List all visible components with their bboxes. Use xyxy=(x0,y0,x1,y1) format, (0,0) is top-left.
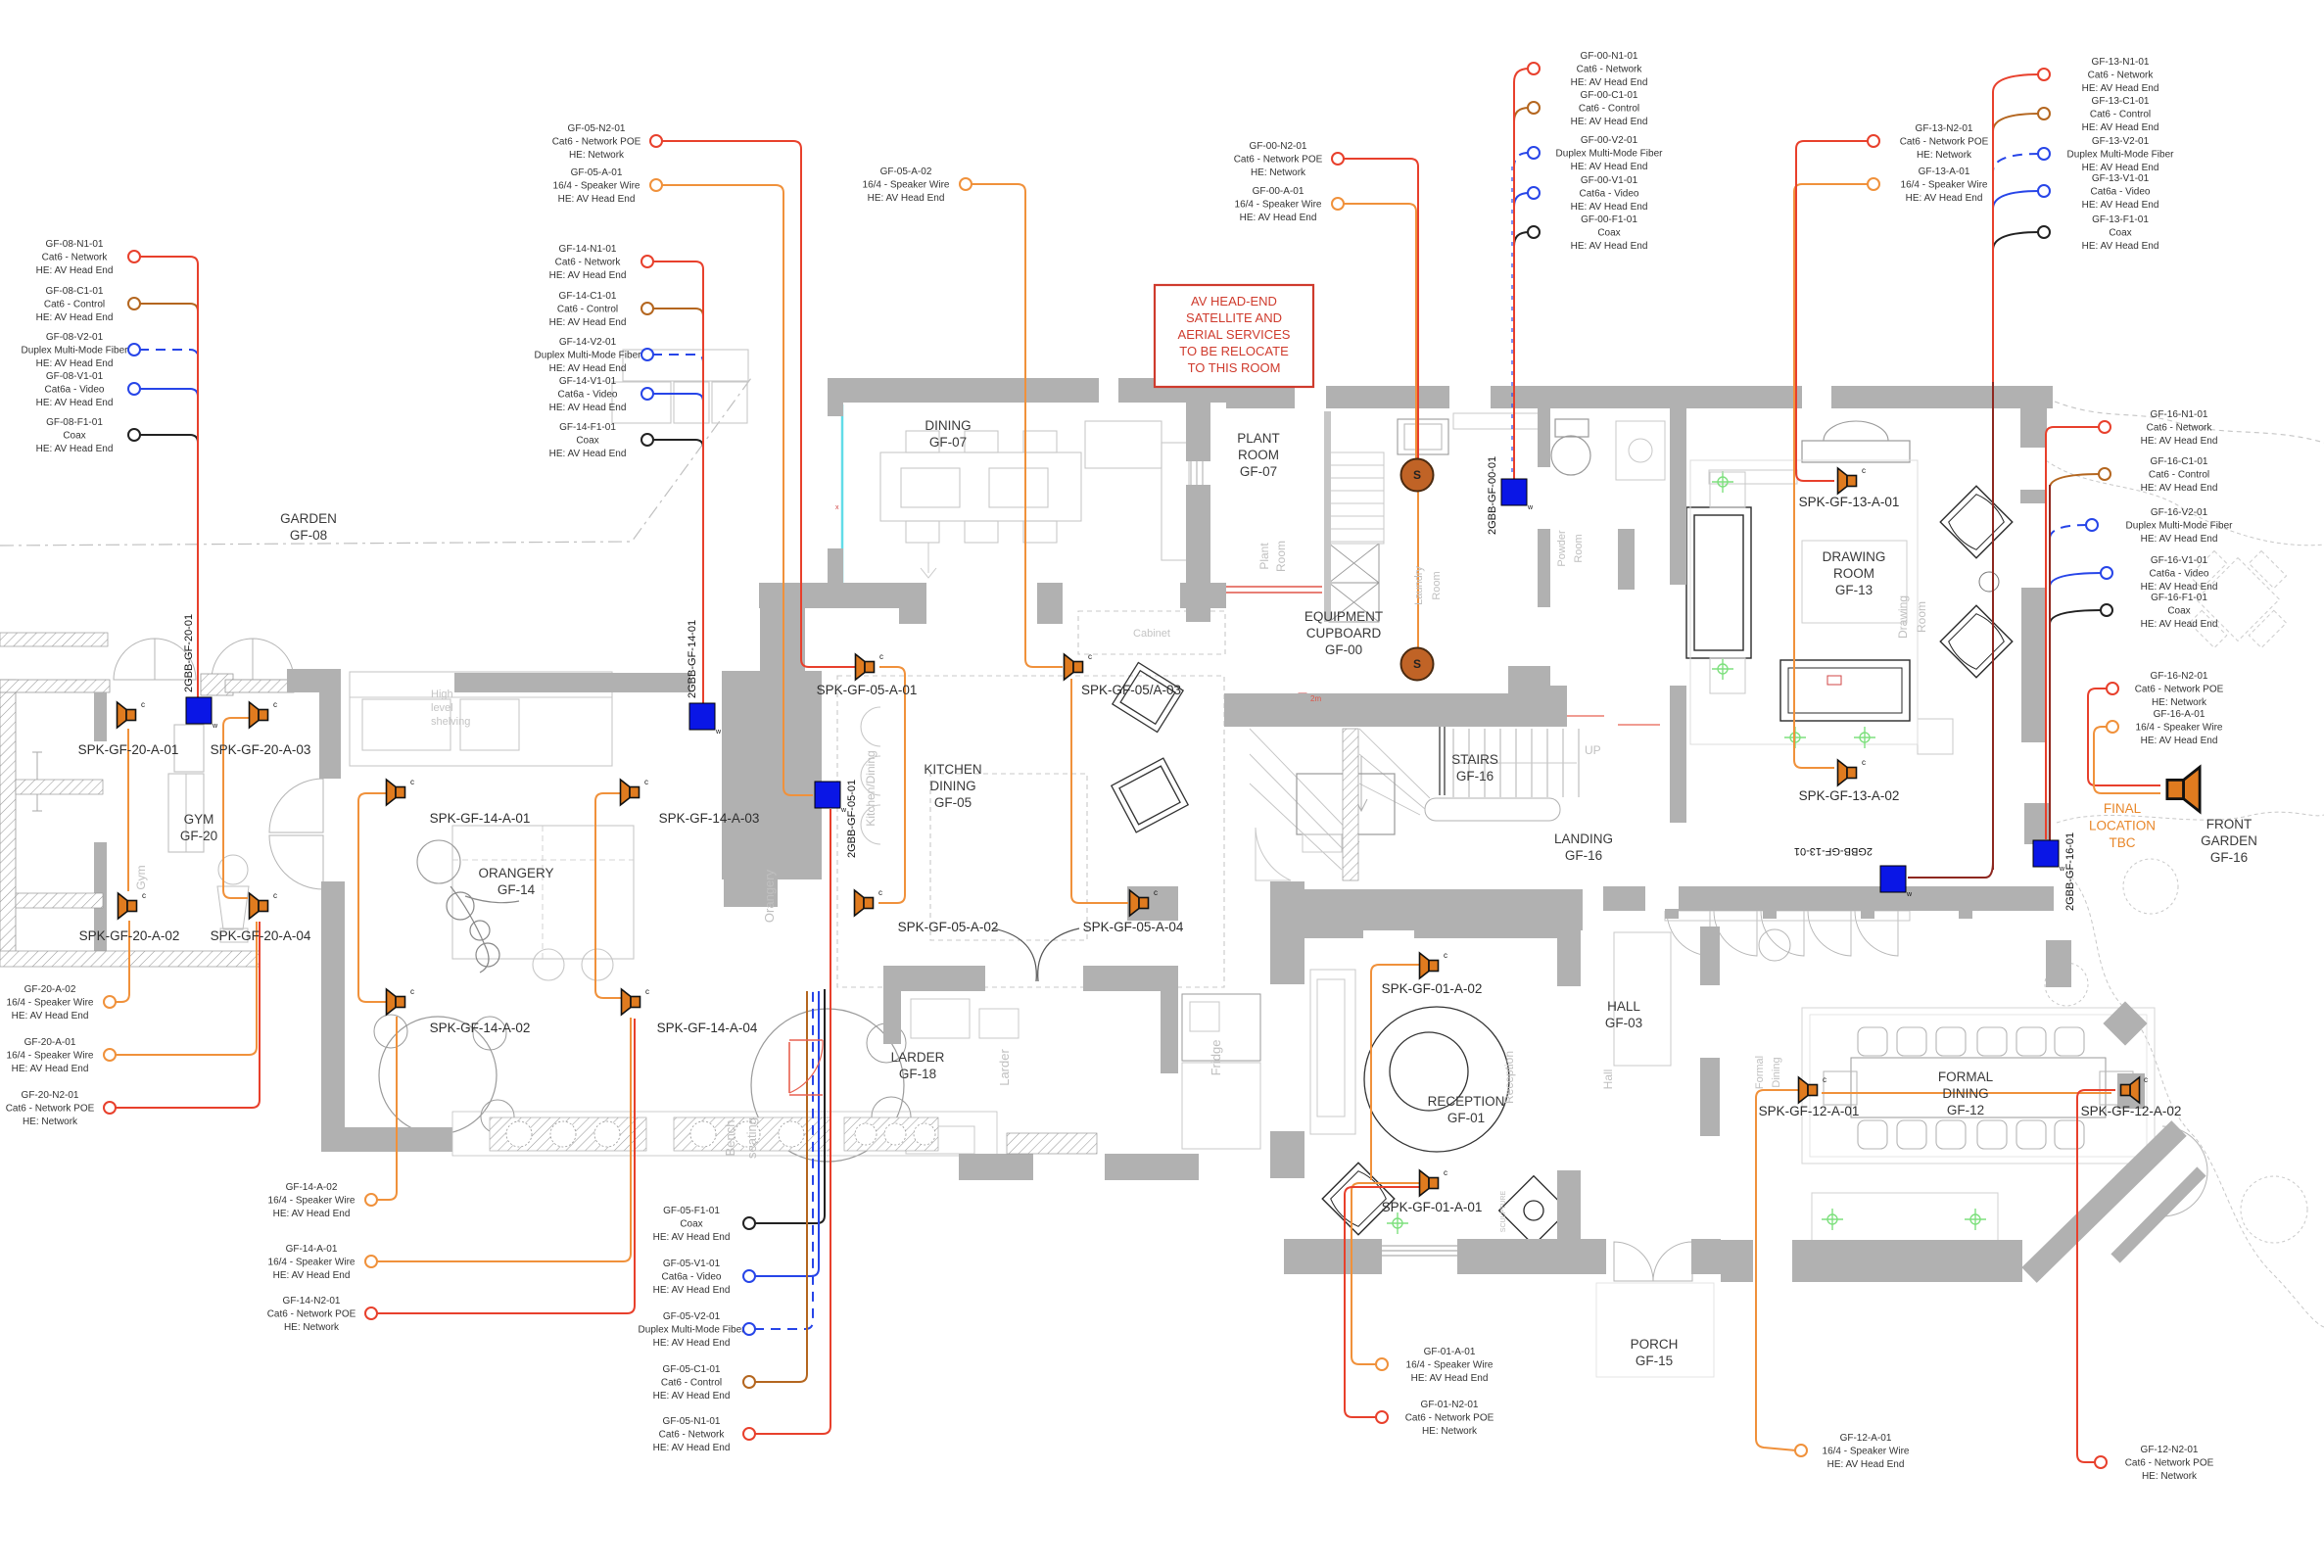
svg-text:Kitchen/Dining: Kitchen/Dining xyxy=(864,750,877,826)
svg-text:GF-14-N1-01Cat6 - NetworkHE: A: GF-14-N1-01Cat6 - NetworkHE: AV Head End xyxy=(549,244,627,281)
svg-text:GF-01: GF-01 xyxy=(1447,1111,1485,1125)
svg-text:RECEPTION: RECEPTION xyxy=(1428,1094,1505,1109)
svg-text:EQUIPMENT: EQUIPMENT xyxy=(1304,609,1383,624)
svg-text:PLANT: PLANT xyxy=(1237,431,1280,446)
svg-text:c: c xyxy=(1088,652,1092,661)
svg-text:UP: UP xyxy=(1585,743,1601,757)
svg-text:Hall: Hall xyxy=(1601,1069,1615,1090)
svg-text:Laundry: Laundry xyxy=(1413,566,1425,605)
svg-text:GF-03: GF-03 xyxy=(1605,1016,1642,1030)
svg-text:Reception: Reception xyxy=(1502,1051,1516,1104)
svg-text:SPK-GF-05-A-04: SPK-GF-05-A-04 xyxy=(1083,920,1184,934)
svg-text:w: w xyxy=(715,729,722,736)
svg-text:DINING: DINING xyxy=(1942,1086,1988,1101)
svg-text:SPK-GF-12-A-02: SPK-GF-12-A-02 xyxy=(2081,1104,2182,1118)
svg-text:w: w xyxy=(1527,504,1534,511)
svg-text:FINAL: FINAL xyxy=(2104,801,2142,816)
svg-text:2GBB-GF-14-01: 2GBB-GF-14-01 xyxy=(687,620,698,698)
svg-text:SPK-GF-20-A-04: SPK-GF-20-A-04 xyxy=(211,928,311,943)
svg-text:c: c xyxy=(1823,1075,1826,1084)
svg-text:GF-13-N1-01Cat6 - NetworkHE: A: GF-13-N1-01Cat6 - NetworkHE: AV Head End xyxy=(2082,57,2159,94)
svg-text:LANDING: LANDING xyxy=(1554,832,1613,846)
svg-text:c: c xyxy=(1444,1168,1447,1177)
svg-text:GF-16: GF-16 xyxy=(1456,769,1494,784)
svg-text:High: High xyxy=(431,689,453,700)
svg-text:SPK-GF-05-A-02: SPK-GF-05-A-02 xyxy=(898,920,999,934)
svg-text:GF-05-N1-01Cat6 - NetworkHE: A: GF-05-N1-01Cat6 - NetworkHE: AV Head End xyxy=(653,1416,731,1453)
svg-text:GF-14-V1-01Cat6a - VideoHE: AV: GF-14-V1-01Cat6a - VideoHE: AV Head End xyxy=(549,376,627,413)
svg-text:AV HEAD-END: AV HEAD-END xyxy=(1191,294,1277,309)
svg-text:AERIAL SERVICES: AERIAL SERVICES xyxy=(1178,327,1291,342)
svg-text:GF-00: GF-00 xyxy=(1325,642,1362,657)
svg-text:GF-20: GF-20 xyxy=(180,829,217,843)
svg-text:c: c xyxy=(1154,888,1158,897)
svg-text:GF-08: GF-08 xyxy=(290,528,327,543)
svg-text:2GBB-GF-00-01: 2GBB-GF-00-01 xyxy=(1487,456,1498,535)
svg-text:ROOM: ROOM xyxy=(1238,448,1279,462)
svg-text:GF-16: GF-16 xyxy=(2210,850,2248,865)
svg-text:SPK-GF-05/A-03: SPK-GF-05/A-03 xyxy=(1081,683,1181,697)
svg-text:Room: Room xyxy=(1431,571,1443,599)
svg-text:c: c xyxy=(273,700,277,709)
svg-text:x: x xyxy=(835,504,839,511)
svg-text:CUPBOARD: CUPBOARD xyxy=(1306,626,1382,641)
svg-text:2GBB-GF-13-01: 2GBB-GF-13-01 xyxy=(1794,845,1873,857)
svg-text:GF-16-V1-01Cat6a - VideoHE: AV: GF-16-V1-01Cat6a - VideoHE: AV Head End xyxy=(2141,555,2218,593)
svg-text:FORMAL: FORMAL xyxy=(1938,1069,1994,1084)
svg-text:level: level xyxy=(431,702,453,714)
svg-text:DINING: DINING xyxy=(925,418,971,433)
svg-text:Fridge: Fridge xyxy=(1209,1040,1223,1076)
svg-text:c: c xyxy=(2144,1075,2148,1084)
svg-text:GARDEN: GARDEN xyxy=(280,511,337,526)
svg-text:2GBB-GF-05-01: 2GBB-GF-05-01 xyxy=(846,780,858,858)
svg-text:GF-07: GF-07 xyxy=(1240,464,1277,479)
svg-text:GARDEN: GARDEN xyxy=(2201,833,2257,848)
svg-text:c: c xyxy=(1862,466,1866,475)
svg-text:GF-14-C1-01Cat6 - ControlHE: A: GF-14-C1-01Cat6 - ControlHE: AV Head End xyxy=(549,291,627,328)
svg-text:GYM: GYM xyxy=(184,812,214,827)
svg-text:Drawing: Drawing xyxy=(1896,595,1910,639)
svg-text:w: w xyxy=(1906,891,1913,898)
svg-text:Room: Room xyxy=(1274,541,1288,572)
svg-text:GF-08-N1-01Cat6 - NetworkHE: A: GF-08-N1-01Cat6 - NetworkHE: AV Head End xyxy=(36,239,114,276)
svg-text:Gym: Gym xyxy=(134,865,148,889)
svg-text:S: S xyxy=(1413,468,1421,482)
svg-text:SPK-GF-12-A-01: SPK-GF-12-A-01 xyxy=(1759,1104,1860,1118)
svg-text:c: c xyxy=(410,778,414,786)
svg-text:TBC: TBC xyxy=(2110,835,2136,850)
svg-text:Plant: Plant xyxy=(1257,543,1271,570)
svg-text:GF-08-V1-01Cat6a - VideoHE: AV: GF-08-V1-01Cat6a - VideoHE: AV Head End xyxy=(36,371,114,408)
svg-text:GF-13-V1-01Cat6a - VideoHE: AV: GF-13-V1-01Cat6a - VideoHE: AV Head End xyxy=(2082,173,2159,211)
svg-text:GF-07: GF-07 xyxy=(929,435,967,450)
svg-text:SPK-GF-13-A-02: SPK-GF-13-A-02 xyxy=(1799,788,1900,803)
svg-text:c: c xyxy=(644,778,648,786)
svg-text:SPK-GF-14-A-02: SPK-GF-14-A-02 xyxy=(430,1021,531,1035)
svg-text:Cabinet: Cabinet xyxy=(1133,628,1170,640)
svg-text:2m: 2m xyxy=(1310,694,1321,703)
svg-text:2GBB-GF-16-01: 2GBB-GF-16-01 xyxy=(2064,832,2076,911)
svg-text:GF-00-N1-01Cat6 - NetworkHE: A: GF-00-N1-01Cat6 - NetworkHE: AV Head End xyxy=(1571,51,1648,88)
svg-text:GF-16-N1-01Cat6 - NetworkHE: A: GF-16-N1-01Cat6 - NetworkHE: AV Head End xyxy=(2141,409,2218,447)
svg-text:GF-05: GF-05 xyxy=(934,795,972,810)
svg-text:SPK-GF-20-A-01: SPK-GF-20-A-01 xyxy=(78,742,179,757)
svg-text:GF-16: GF-16 xyxy=(1565,848,1602,863)
svg-text:Room: Room xyxy=(1573,534,1585,562)
svg-text:c: c xyxy=(1444,951,1447,960)
svg-text:GF-13: GF-13 xyxy=(1835,583,1873,597)
svg-text:Formal: Formal xyxy=(1754,1056,1766,1089)
svg-text:SPK-GF-20-A-03: SPK-GF-20-A-03 xyxy=(211,742,311,757)
svg-text:SPK-GF-14-A-04: SPK-GF-14-A-04 xyxy=(657,1021,758,1035)
svg-text:HALL: HALL xyxy=(1607,999,1640,1014)
svg-text:SATELLITE AND: SATELLITE AND xyxy=(1186,310,1282,325)
svg-text:GF-15: GF-15 xyxy=(1636,1354,1673,1368)
svg-text:STAIRS: STAIRS xyxy=(1451,752,1498,767)
svg-text:c: c xyxy=(273,891,277,900)
svg-text:TO BE RELOCATE: TO BE RELOCATE xyxy=(1179,344,1289,358)
svg-text:S: S xyxy=(1413,657,1421,671)
svg-text:LARDER: LARDER xyxy=(891,1050,945,1065)
svg-text:2GBB-GF-20-01: 2GBB-GF-20-01 xyxy=(183,614,195,692)
svg-text:LOCATION: LOCATION xyxy=(2089,819,2156,833)
svg-text:Powder: Powder xyxy=(1556,530,1568,567)
svg-text:c: c xyxy=(141,700,145,709)
svg-text:SPK-GF-20-A-02: SPK-GF-20-A-02 xyxy=(79,928,180,943)
svg-text:GF-00-V1-01Cat6a - VideoHE: AV: GF-00-V1-01Cat6a - VideoHE: AV Head End xyxy=(1571,175,1648,213)
svg-text:SPK-GF-01-A-01: SPK-GF-01-A-01 xyxy=(1382,1200,1483,1214)
svg-text:c: c xyxy=(879,652,883,661)
svg-text:GF-12: GF-12 xyxy=(1947,1103,1984,1117)
svg-text:PORCH: PORCH xyxy=(1631,1337,1679,1352)
svg-text:c: c xyxy=(1862,758,1866,767)
svg-text:Dining: Dining xyxy=(1771,1057,1782,1087)
svg-text:FRONT: FRONT xyxy=(2206,817,2253,832)
svg-text:Orangery: Orangery xyxy=(762,869,777,923)
svg-text:SPK-GF-14-A-03: SPK-GF-14-A-03 xyxy=(659,811,760,826)
svg-text:GF-13-C1-01Cat6 - ControlHE: A: GF-13-C1-01Cat6 - ControlHE: AV Head End xyxy=(2082,96,2159,133)
svg-text:Bench: Bench xyxy=(723,1120,737,1157)
svg-text:TO THIS ROOM: TO THIS ROOM xyxy=(1188,360,1281,375)
svg-text:GF-05-V1-01Cat6a - VideoHE: AV: GF-05-V1-01Cat6a - VideoHE: AV Head End xyxy=(653,1259,731,1296)
svg-text:GF-05-C1-01Cat6 - ControlHE: A: GF-05-C1-01Cat6 - ControlHE: AV Head End xyxy=(653,1364,731,1402)
svg-text:GF-18: GF-18 xyxy=(899,1067,936,1081)
svg-text:Larder: Larder xyxy=(997,1049,1012,1086)
svg-text:SPK-GF-01-A-02: SPK-GF-01-A-02 xyxy=(1382,981,1483,996)
svg-text:GF-00-C1-01Cat6 - ControlHE: A: GF-00-C1-01Cat6 - ControlHE: AV Head End xyxy=(1571,90,1648,127)
svg-text:GF-08-C1-01Cat6 - ControlHE: A: GF-08-C1-01Cat6 - ControlHE: AV Head End xyxy=(36,286,114,323)
svg-text:SPK-GF-14-A-01: SPK-GF-14-A-01 xyxy=(430,811,531,826)
svg-text:c: c xyxy=(142,891,146,900)
svg-text:SPK-GF-13-A-01: SPK-GF-13-A-01 xyxy=(1799,495,1900,509)
svg-text:DRAWING: DRAWING xyxy=(1823,549,1886,564)
svg-text:shelving: shelving xyxy=(431,716,470,728)
svg-text:KITCHEN: KITCHEN xyxy=(924,762,981,777)
svg-text:SCULPTURE: SCULPTURE xyxy=(1500,1190,1507,1232)
svg-text:c: c xyxy=(410,987,414,996)
svg-text:ROOM: ROOM xyxy=(1833,566,1874,581)
svg-text:w: w xyxy=(212,723,218,730)
svg-text:ORANGERY: ORANGERY xyxy=(478,866,553,880)
svg-text:c: c xyxy=(645,987,649,996)
svg-text:Room: Room xyxy=(1915,601,1928,633)
svg-text:SPK-GF-05-A-01: SPK-GF-05-A-01 xyxy=(817,683,918,697)
svg-text:seating: seating xyxy=(744,1117,759,1159)
svg-text:c: c xyxy=(878,888,882,897)
svg-text:GF-14: GF-14 xyxy=(498,882,536,897)
svg-text:GF-16-C1-01Cat6 - ControlHE: A: GF-16-C1-01Cat6 - ControlHE: AV Head End xyxy=(2141,456,2218,494)
svg-text:DINING: DINING xyxy=(929,779,975,793)
